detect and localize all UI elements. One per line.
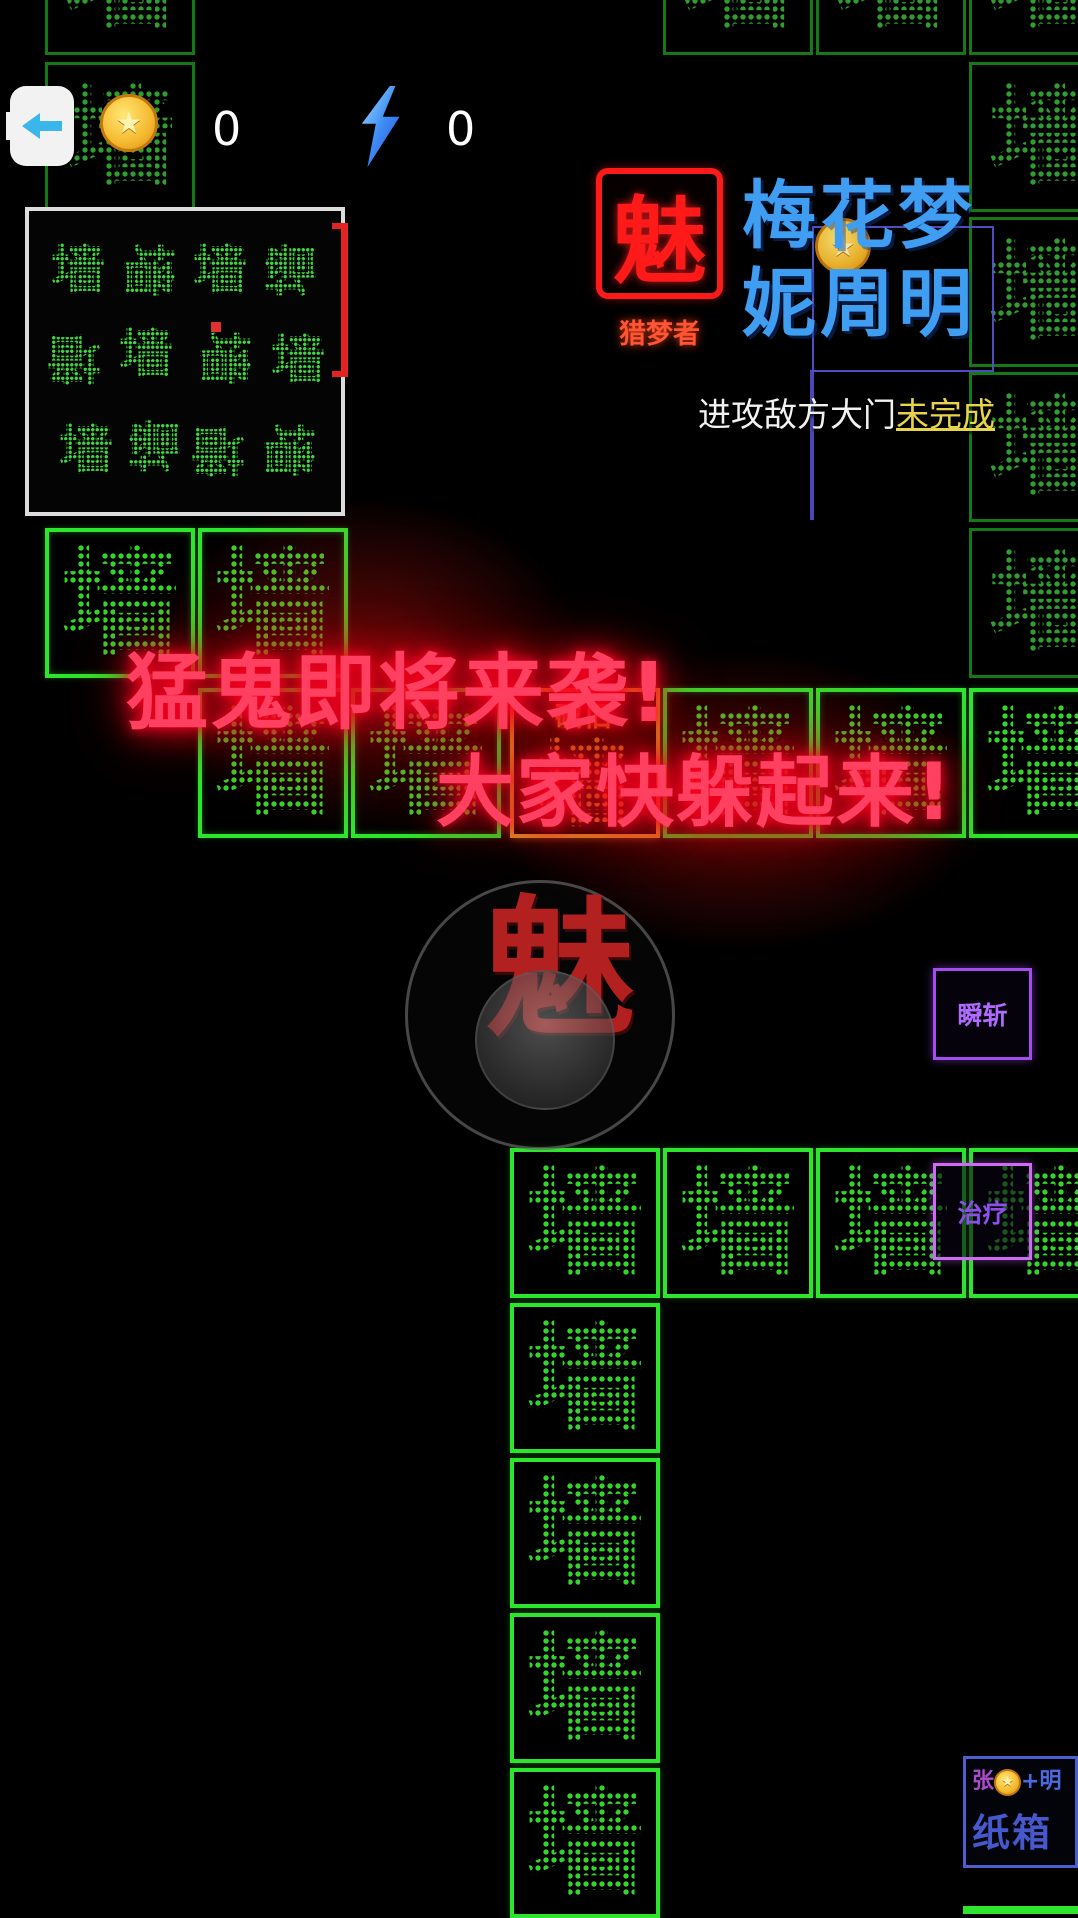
wall-tile: 墙 [510,1148,660,1298]
cardboard-box-entity: 张★+明 纸箱 [963,1756,1078,1868]
floor-tile-dim: 墙 [969,528,1078,678]
tile-glyph: 墙 [985,704,1078,822]
minimap-room-cluster: 墙 [193,243,247,297]
wall-tile: 墙 [510,1458,660,1608]
minimap-room-cluster: 墙 [271,333,325,387]
minimap: 墙墙墙墙墙墙墙墙墙墙墙墙 [25,207,345,516]
back-arrow-icon [38,121,62,131]
objective-label: 进攻敌方大门 [698,395,896,434]
tile-glyph: 墙 [526,1474,644,1592]
minimap-room-cluster: 墙 [119,327,173,381]
tile-glyph: 墙 [683,0,793,35]
minimap-highlight-bracket [332,371,348,377]
coin-icon: ★ [994,1769,1021,1796]
wall-tile: 墙 [510,1768,660,1918]
tile-glyph: 墙 [526,1319,644,1437]
game-screen: 墙墙墙墙墙墙墙墙墙墙墙墙墙破旧墙墙墙墙墙墙墙墙墙墙墙墙 墙墙墙墙墙墙墙墙墙墙墙墙… [0,0,1078,1918]
minimap-room-cluster: 墙 [265,243,319,297]
tile-glyph: 墙 [836,0,946,35]
skill-button-instant-slash[interactable]: 瞬斩 [933,968,1032,1060]
tile-glyph: 墙 [989,0,1078,35]
tile-glyph: 墙 [65,0,175,35]
objective-text: 进攻敌方大门未完成 [698,388,1078,436]
skill-button-heal[interactable]: 治疗 [933,1163,1032,1260]
tile-glyph: 墙 [526,1164,644,1282]
minimap-highlight-bracket [332,223,348,229]
coin-counter: 0 [212,102,241,156]
energy-counter: 0 [446,102,475,156]
player-name-line1: 梅花梦 [742,172,1002,260]
warning-line2: 大家快躲起来! [436,730,954,842]
box-label: 纸箱 [972,1802,1075,1857]
tile-edge-bar [963,1906,1078,1914]
minimap-room-cluster: 墙 [129,419,183,473]
minimap-room-cluster: 墙 [121,243,175,297]
floor-tile-dim: 墙 [663,0,813,55]
energy-bolt-icon [350,86,410,170]
tile-glyph: 墙 [526,1629,644,1747]
floor-tile-dim: 墙 [969,0,1078,55]
faction-logo: 魅 [596,168,723,299]
floor-tile-dim: 墙 [45,0,195,55]
box-owner-name: 张★+明 [972,1763,1075,1796]
back-button[interactable] [10,86,74,166]
box-owner-suffix: +明 [1021,1769,1061,1794]
tile-glyph: 墙 [526,1784,644,1902]
objective-status: 未完成 [896,395,995,434]
tile-glyph: 墙 [989,237,1078,347]
minimap-room-cluster: 墙 [47,331,101,385]
box-owner-prefix: 张 [972,1769,994,1794]
minimap-room-cluster: 墙 [197,331,251,385]
minimap-room-cluster: 墙 [191,423,245,477]
floor-tile-dim: 墙 [816,0,966,55]
joystick-knob[interactable] [475,970,615,1110]
player-name: 梅花梦 妮周明 [742,172,1002,348]
wall-tile: 墙 [510,1303,660,1453]
tile-glyph: 墙 [679,1164,797,1282]
faction-logo-char: 魅 [612,166,706,302]
coin-icon: ★ [100,94,158,152]
minimap-player-dot [211,322,221,332]
player-name-line2: 妮周明 [742,260,1002,348]
minimap-room-cluster: 墙 [51,243,105,297]
minimap-highlight-bracket [341,223,348,377]
minimap-room-cluster: 墙 [261,423,315,477]
tile-glyph: 墙 [989,548,1078,658]
wall-tile: 墙 [663,1148,813,1298]
faction-role-label: 猎梦者 [596,312,723,351]
wall-tile: 墙 [510,1613,660,1763]
floor-tile: 墙 [969,688,1078,838]
tile-glyph: 墙 [989,82,1078,192]
warning-line1: 猛鬼即将来袭! [126,626,669,745]
minimap-room-cluster: 墙 [59,423,113,477]
